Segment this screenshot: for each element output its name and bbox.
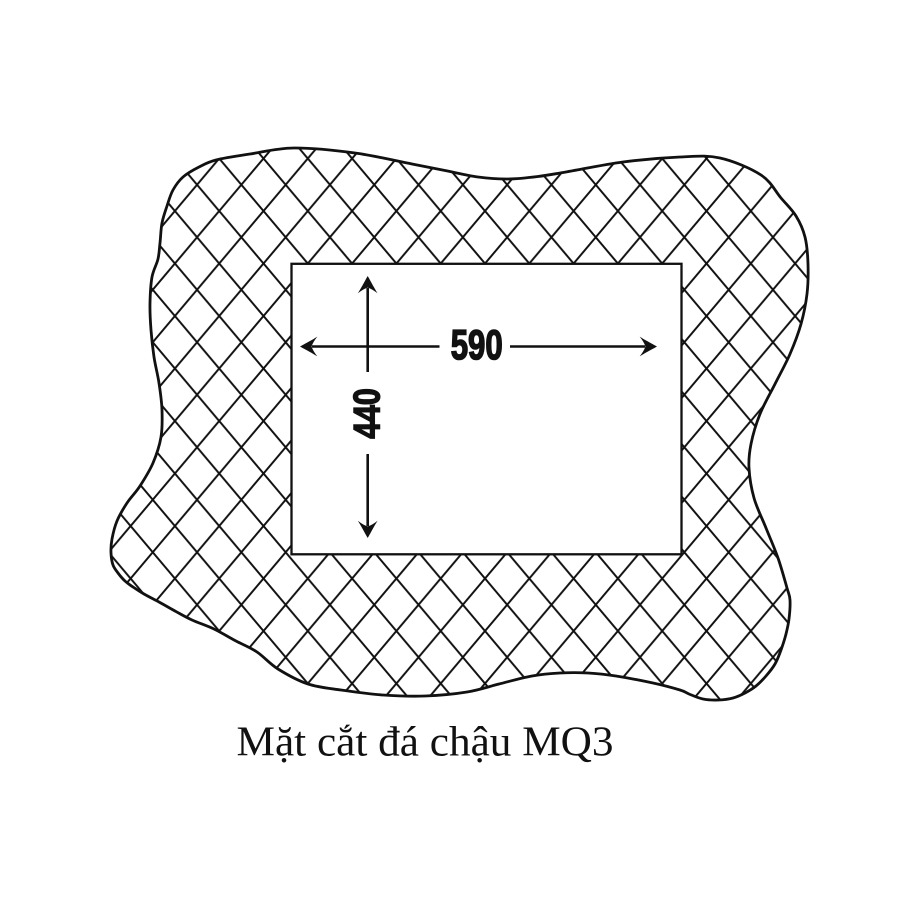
svg-text:440: 440	[346, 388, 388, 439]
svg-text:590: 590	[451, 321, 503, 368]
svg-text:Mặt cắt đá chậu MQ3: Mặt cắt đá chậu MQ3	[237, 720, 614, 766]
